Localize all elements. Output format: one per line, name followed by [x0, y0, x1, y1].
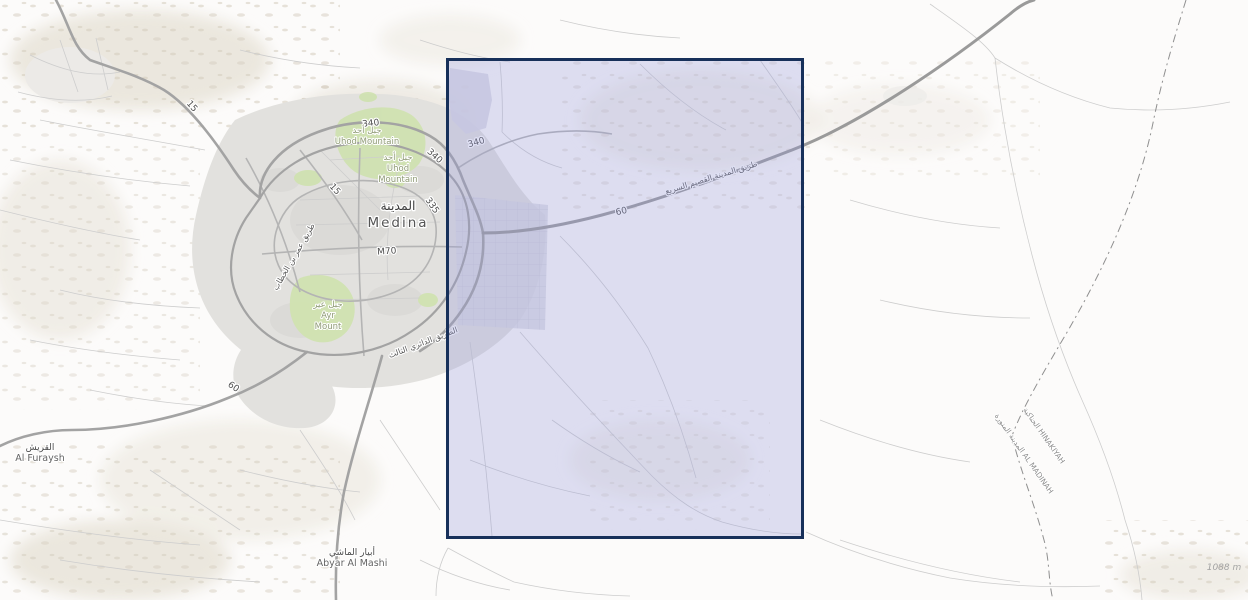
uhod-mountain-inner-label-arabic: جبل أحد [383, 151, 412, 163]
abyar-al-mashi-label-english: Abyar Al Mashi [317, 558, 388, 569]
elevation-label: 1088 m [1207, 563, 1242, 573]
ayr-mount-label-arabic: جبل عير [312, 300, 342, 310]
uhod-mountain-inner-label-line1: Uhod [387, 164, 409, 174]
ayr-mount-label-line2: Mount [315, 322, 342, 332]
abyar-al-mashi-label-arabic: أبيار الماشي [329, 546, 375, 558]
ayr-mount-label-line1: Ayr [321, 311, 335, 321]
boundary-label-west: المدينة المنورة AL MADINAH [993, 412, 1055, 496]
uhod-mountain-outer-label-arabic: جبل أحد [352, 124, 381, 136]
map-viewport: الحناكية HINAKIYAH المدينة المنورة AL MA… [0, 0, 1248, 600]
road-shield-m70: M70 [377, 246, 397, 257]
selection-rectangle[interactable] [446, 58, 804, 539]
uhod-mountain-outer-label-english: Uhod Mountain [335, 137, 400, 147]
uhod-mountain-inner-label-line2: Mountain [378, 175, 418, 185]
city-label-english: Medina [367, 215, 428, 231]
al-furaysh-label-arabic: القريش [26, 443, 55, 453]
city-label-arabic: المدينة [380, 198, 415, 213]
al-furaysh-label-english: Al Furaysh [15, 453, 64, 464]
